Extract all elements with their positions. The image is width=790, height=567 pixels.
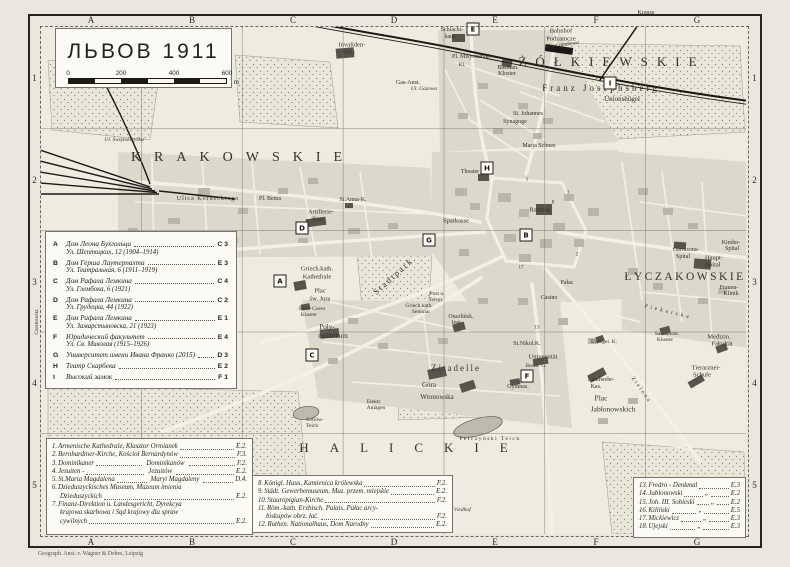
bottom-legend-number: 7.	[52, 501, 57, 509]
bottom-legend-leader-dots	[364, 486, 434, 487]
publisher-imprint: Geograph. Anst. v. Wagner & Debes, Leipz…	[38, 551, 143, 557]
bottom-legend-number: 18.	[639, 523, 648, 531]
map-label: Spital	[705, 262, 720, 269]
bottom-legend-gridref: E.3	[731, 523, 740, 531]
legend-item-address: Ул. Св. Миколая (1915–1926)	[66, 341, 228, 348]
map-label: Unionshügel	[604, 95, 640, 103]
map-marker-e: E	[467, 23, 480, 36]
bottom-legend-row: 17.Mickiewicz„E.3	[639, 515, 740, 523]
map-label: Haupt-	[705, 255, 723, 262]
legend-item-address: Ул. Замарстыновска, 21 (1923)	[66, 323, 228, 330]
map-label: haus	[445, 34, 456, 40]
map-label: Bahnhof	[550, 28, 572, 35]
map-label: Kathedrale	[303, 274, 332, 281]
map-label: Landwehr-	[588, 377, 614, 383]
bottom-legend-row: 7.Finanz-Direktion u. Landesgericht, Dyr…	[52, 501, 247, 509]
bottom-legend-gridref: E.2	[731, 499, 740, 507]
map-label: Spital	[676, 254, 690, 260]
bottom-legend-number: 8.	[258, 480, 263, 488]
map-label: Pałac	[561, 280, 574, 286]
map-label: Pełczyński Teich	[459, 436, 520, 442]
bottom-legend-number: 1.	[52, 443, 57, 451]
legend-item: CДом Рафала ЛемкинаC 4Ул. Глембока, 6 (1…	[53, 277, 228, 293]
map-label: Griech.kath.	[301, 266, 333, 273]
grid-row-label: 4	[32, 378, 37, 388]
bottom-legend-row: krajowa skarbowa i Sąd krajowy dla spraw	[52, 509, 247, 517]
legend-item-body: Юридический факультетE 4Ул. Св. Миколая …	[66, 333, 228, 349]
map-label: św. Jura	[310, 296, 331, 303]
legend-item: BДом Герша ЛаутерпахтаE 3Ул. Театральная…	[53, 259, 228, 275]
bottom-legend-row: 1.Armenische Kathedrale, Klasztor Ormian…	[52, 443, 247, 451]
bottom-legend-leader-dots	[89, 523, 234, 524]
bottom-legend-text: krajowa skarbowa i Sąd krajowy dla spraw	[60, 509, 178, 517]
bottom-legend-gridref: D.4.	[235, 476, 247, 484]
bottom-legend-leader-dots	[321, 519, 435, 520]
bottom-legend-row: 16.Kiliński„E.5	[639, 507, 740, 515]
bottom-legend-leader-dots	[117, 482, 147, 483]
bottom-legend-polish-name: Dominikanów	[146, 460, 184, 468]
bottom-legend-number: 2.	[52, 451, 57, 459]
bottom-legend-number: 3.	[52, 460, 57, 468]
map-label: Stadtpark	[371, 255, 415, 296]
bottom-legend-text: biskupów obrz. łać.	[266, 513, 319, 521]
bottom-legend-text: cywilnych	[60, 518, 87, 526]
bottom-legend-gridref: E.2	[731, 490, 740, 498]
scale-unit: m	[234, 79, 239, 86]
bottom-legend-leader-dots	[176, 474, 234, 475]
map-label: Rathaus	[530, 207, 551, 214]
map-label: Telegr.	[428, 297, 443, 303]
bottom-legend-middle: 8.Königl. Haus, Kamienica królewskaF.2.9…	[252, 475, 453, 533]
legend-leader-dots	[135, 301, 215, 302]
bottom-legend-row: 6.Dzieduszyckisches Museum, Muzeum imien…	[52, 484, 247, 492]
map-label: HALICKIE	[299, 440, 528, 456]
bottom-legend-gridref: F.2.	[237, 460, 247, 468]
bottom-legend-gridref: E.3	[731, 482, 740, 490]
map-label: 13	[535, 326, 540, 331]
bottom-legend-leader-dots	[180, 457, 235, 458]
legend-leader-dots	[198, 357, 214, 358]
bottom-legend-leader-dots	[104, 499, 234, 500]
map-marker-f: F	[521, 370, 534, 383]
title-box: ЛЬВОВ 1911 0200400600 m	[55, 28, 232, 88]
bottom-legend-text: Finanz-Direktion u. Landesgericht, Dyrek…	[58, 501, 182, 509]
scale-segment	[174, 79, 200, 83]
legend-item-gridref: E 1	[218, 315, 228, 322]
bottom-legend-row: 2.Bernhardiner-Kirche, Kościoł Bernardyn…	[52, 451, 247, 459]
grid-col-label: F	[593, 15, 598, 25]
legend-item: AДом Леона БухгольцаC 3Ул. Шептицких, 12…	[53, 240, 228, 256]
legend-item: IВысокий замокF 1	[53, 373, 228, 381]
map-label: Góra	[422, 381, 436, 389]
bottom-legend-gridref: E.5	[731, 507, 740, 515]
map-label: Krause	[638, 10, 655, 16]
map-label: Marja Schnee	[522, 143, 555, 149]
legend-item-key: D	[53, 296, 66, 312]
bottom-legend-text: Röm.-kath. Erzbisch. Palais, Pałac arcy-	[267, 505, 378, 513]
map-label: Anlagen	[367, 405, 386, 411]
legend-box: AДом Леона БухгольцаC 3Ул. Шептицких, 12…	[45, 231, 237, 389]
bottom-legend-leader-dots	[96, 465, 142, 466]
map-label: Theater	[461, 169, 479, 175]
bottom-legend-gridref: E.2.	[236, 518, 247, 526]
bottom-legend-leader-dots	[672, 513, 697, 514]
scale-bar: 0200400600 m	[68, 70, 227, 84]
bottom-legend-text: Dzieduszyckich	[60, 493, 102, 501]
bottom-legend-text: Ujejski	[649, 523, 668, 531]
legend-item-body: Дом Герша ЛаутерпахтаE 3Ул. Театральная,…	[66, 259, 228, 275]
bottom-legend-ditto-mark: „	[711, 499, 715, 507]
bottom-legend-row: 10.Stauropigian-KircheF.2.	[258, 497, 447, 505]
grid-row-label: 4	[752, 378, 757, 388]
bottom-legend-row: DzieduszyckichE.2.	[52, 493, 247, 501]
bottom-legend-gridref: E.2.	[436, 521, 447, 529]
bottom-legend-row: 12.Ruthen. Nationalhaus, Dom NarodnyE.2.	[258, 521, 447, 529]
map-label: Casino	[541, 295, 558, 301]
legend-item-body: Дом Рафала ЛемкинаC 4Ул. Глембока, 6 (19…	[66, 277, 228, 293]
map-label: Kas.	[591, 384, 602, 390]
bottom-legend-row: 4.Jesuiten -JezuitówE.2.	[52, 468, 247, 476]
bottom-legend-row: 9.Städt. Gewerbemuseum, Muz. przem. miej…	[258, 488, 447, 496]
bottom-legend-row: biskupów obrz. łać.F.2.	[258, 513, 447, 521]
grid-col-label: E	[492, 537, 498, 547]
legend-item-address: Ул. Глембока, 6 (1921)	[66, 286, 228, 293]
bottom-legend-leader-dots	[704, 513, 729, 514]
map-label: Universität	[529, 354, 558, 361]
legend-item-line: Дом Рафала ЛемкинаC 2	[66, 296, 228, 304]
legend-item-line: Театр СкарбекаE 2	[66, 362, 228, 370]
legend-item-gridref: E 3	[218, 260, 228, 267]
bottom-legend-row: 15.Joh. III. Sobieski„E.2	[639, 499, 740, 507]
map-label: Pl. Bema	[259, 196, 281, 202]
grid-row-label: 2	[32, 175, 37, 185]
map-marker-d: D	[296, 222, 309, 235]
scale-bar-segments	[68, 78, 227, 84]
legend-item-key: H	[53, 362, 66, 370]
legend-item-key: B	[53, 259, 66, 275]
bottom-legend-text: Jabłonowski	[649, 490, 683, 498]
legend-item-body: Дом Рафала ЛемкинаC 2Ул. Грудецка, 44 (1…	[66, 296, 228, 312]
scale-segment	[69, 79, 95, 83]
legend-item-key: A	[53, 240, 66, 256]
bottom-legend-leader-dots	[203, 482, 233, 483]
map-label: Czernowitz	[34, 309, 40, 334]
bottom-legend-leader-dots	[697, 504, 709, 505]
map-label: Artillerie-	[308, 209, 334, 216]
bottom-legend-leader-dots	[717, 504, 729, 505]
legend-item: FЮридический факультетE 4Ул. Св. Миколая…	[53, 333, 228, 349]
bottom-legend-leader-dots	[670, 529, 696, 530]
bottom-legend-leader-dots	[189, 465, 235, 466]
bottom-legend-text: Stauropigian-Kirche	[268, 497, 324, 505]
scale-segment	[148, 79, 174, 83]
legend-item-name: Дом Рафала Лемкина	[66, 314, 132, 322]
bottom-legend-polish-name: Jezuitów	[148, 468, 172, 476]
legend-leader-dots	[135, 283, 215, 284]
map-label: Plac	[314, 288, 325, 295]
legend-item-name: Университет имени Ивана Франко (2015)	[66, 351, 195, 359]
legend-item-gridref: D 3	[217, 352, 228, 359]
legend-item-name: Юридический факультет	[66, 333, 145, 341]
map-label: Kl.	[459, 62, 466, 68]
map-marker-h: H	[481, 162, 494, 175]
map-label: Poly-	[319, 323, 334, 331]
legend-item-key: F	[53, 333, 66, 349]
legend-item: GУниверситет имени Ивана Франко (2015)D …	[53, 351, 228, 359]
bottom-legend-text: Joh. III. Sobieski	[649, 499, 695, 507]
legend-item: DДом Рафала ЛемкинаC 2Ул. Грудецка, 44 (…	[53, 296, 228, 312]
legend-item-line: Университет имени Ивана Франко (2015)D 3	[66, 351, 228, 359]
map-label: Gymnas.	[507, 384, 529, 390]
legend-item-key: C	[53, 277, 66, 293]
map-marker-a: A	[274, 275, 287, 288]
legend-item: EДом Рафала ЛемкинаE 1Ул. Замарстыновска…	[53, 314, 228, 330]
map-label: Friedhof	[451, 507, 470, 513]
bottom-legend-text: Dominikaner	[58, 460, 94, 468]
map-label: St.Nikol.K.	[513, 341, 541, 347]
bottom-legend-gridref: E.2.	[236, 493, 247, 501]
legend-item-gridref: C 3	[217, 241, 228, 248]
bottom-legend-gridref: E.2.	[236, 443, 247, 451]
grid-col-label: D	[391, 537, 398, 547]
bottom-legend-leader-dots	[86, 474, 144, 475]
bottom-legend-text: Dzieduszyckisches Museum, Muzeum imienia	[58, 484, 181, 492]
map-marker-b: B	[520, 229, 533, 242]
map-label: 8	[552, 201, 555, 206]
scale-tick-labels: 0200400600	[68, 70, 227, 78]
legend-item: HТеатр СкарбекаE 2	[53, 362, 228, 370]
bottom-legend-ditto-mark: „	[703, 515, 707, 523]
map-label: Pl. Misyonarski	[452, 54, 490, 60]
bottom-legend-polish-name: Maryi Magdaleny	[151, 476, 200, 484]
map-label: Schule	[693, 372, 711, 379]
bottom-legend-leader-dots	[325, 502, 435, 503]
map-label: Piekarska	[644, 303, 692, 321]
map-label: Invaliden-	[339, 42, 366, 49]
grid-row-label: 3	[752, 277, 757, 287]
map-label: technikum	[318, 332, 348, 340]
map-label: Evangel. K.	[591, 339, 617, 345]
legend-item-name: Высокий замок	[66, 373, 112, 381]
bottom-legend-number: 16.	[639, 507, 648, 515]
bottom-legend-gridref: E.3	[731, 515, 740, 523]
bottom-legend-leader-dots	[699, 488, 728, 489]
map-label: Kloster	[301, 312, 317, 318]
bottom-legend-leader-dots	[391, 494, 434, 495]
bottom-legend-number: 12.	[258, 521, 267, 529]
legend-item-gridref: E 2	[218, 363, 228, 370]
bottom-legend-leader-dots	[709, 521, 729, 522]
grid-col-label: A	[88, 15, 95, 25]
bottom-legend-left: 1.Armenische Kathedrale, Klasztor Ormian…	[46, 438, 253, 535]
map-label: haus	[343, 49, 355, 56]
map-label: Garnisons-	[673, 247, 699, 253]
bottom-legend-text: Kiliński	[649, 507, 670, 515]
legend-item-body: Театр СкарбекаE 2	[66, 362, 228, 370]
bottom-legend-leader-dots	[180, 449, 234, 450]
map-label: Botan. G.	[525, 363, 546, 369]
scale-label: 200	[116, 70, 127, 77]
map-label: Kloster	[498, 71, 516, 77]
legend-item-gridref: F 1	[218, 374, 228, 381]
map-label: Spital	[725, 246, 739, 252]
legend-item-address: Ул. Грудецка, 44 (1922)	[66, 304, 228, 311]
bottom-legend-row: 8.Königl. Haus, Kamienica królewskaF.2.	[258, 480, 447, 488]
map-label: 3	[567, 191, 570, 196]
legend-item-address: Ул. Шептицких, 12 (1904–1914)	[66, 249, 228, 256]
legend-leader-dots	[119, 368, 215, 369]
scale-label: 0	[66, 70, 70, 77]
map-label: Fakultät	[711, 341, 732, 348]
grid-col-label: C	[290, 537, 296, 547]
bottom-legend-number: 11.	[258, 505, 266, 513]
map-label: Sparkasse	[443, 218, 469, 225]
grid-col-label: F	[593, 537, 598, 547]
legend-item-name: Дом Герша Лаутерпахта	[66, 259, 145, 267]
map-label: Kas.	[312, 216, 324, 223]
legend-leader-dots	[148, 338, 215, 339]
map-label: St.Anna-K.	[339, 197, 366, 203]
bottom-legend-number: 17.	[639, 515, 648, 523]
bottom-legend-gridref: F.2.	[437, 480, 447, 488]
legend-item-name: Дом Рафала Лемкина	[66, 277, 132, 285]
map-label: 1	[526, 178, 529, 183]
map-label: ŻÓŁKIEWSKIE	[518, 54, 705, 70]
legend-leader-dots	[134, 246, 214, 247]
bottom-legend-gridref: F.2.	[437, 497, 447, 505]
legend-item-gridref: C 2	[217, 297, 228, 304]
grid-col-label: B	[189, 537, 195, 547]
legend-item-address: Ул. Театральная, 6 (1911–1919)	[66, 267, 228, 274]
bottom-legend-text: Jesuiten -	[58, 468, 84, 476]
bottom-legend-text: Städt. Gewerbemuseum, Muz. przem. miejsk…	[264, 488, 389, 496]
scale-segment	[200, 79, 226, 83]
grid-col-label: A	[88, 537, 95, 547]
map-label: Schlacht-	[441, 27, 464, 33]
bottom-legend-number: 10.	[258, 497, 267, 505]
grid-col-label: E	[492, 15, 498, 25]
legend-item-line: Дом Леона БухгольцаC 3	[66, 240, 228, 248]
bottom-legend-leader-dots	[371, 527, 434, 528]
map-label: Tierarznei-	[692, 365, 721, 372]
legend-item-line: Дом Рафала ЛемкинаE 1	[66, 314, 228, 322]
map-label: Jabłonowskich	[591, 405, 636, 414]
map-label: Seminar	[412, 309, 430, 315]
map-label: Ul. Świętokrzyska	[104, 137, 143, 143]
legend-item-body: Дом Рафала ЛемкинаE 1Ул. Замарстыновска,…	[66, 314, 228, 330]
legend-item-line: Дом Герша ЛаутерпахтаE 3	[66, 259, 228, 267]
map-label: Ulica Kordeckiego	[177, 196, 239, 202]
grid-col-label: D	[391, 15, 398, 25]
map-label: 17	[519, 266, 524, 271]
legend-leader-dots	[148, 264, 215, 265]
bottom-legend-ditto-mark: „	[697, 523, 701, 531]
map-label: Plac	[595, 394, 608, 403]
bottom-legend-number: 15.	[639, 499, 648, 507]
bottom-legend-gridref: E.2.	[436, 488, 447, 496]
map-label: Medizin.	[707, 334, 730, 341]
grid-row-label: 5	[752, 480, 757, 490]
map-label: 2	[576, 253, 579, 258]
legend-item-name: Дом Леона Бухгольца	[66, 240, 131, 248]
bottom-legend-gridref: F.3.	[237, 451, 247, 459]
bottom-legend-row: 14.Jabłonowski„E.2	[639, 490, 740, 498]
bottom-legend-ditto-mark: „	[698, 507, 702, 515]
grid-col-label: B	[189, 15, 195, 25]
grid-row-label: 5	[32, 480, 37, 490]
map-label: St. Johannes	[513, 111, 543, 117]
bottom-legend-number: 6.	[52, 484, 57, 492]
page-title: ЛЬВОВ 1911	[56, 40, 231, 64]
bottom-legend-leader-dots	[711, 496, 729, 497]
map-label: Wronowska	[420, 393, 454, 401]
legend-item-key: E	[53, 314, 66, 330]
bottom-legend-row: 18.Ujejski„E.3	[639, 523, 740, 531]
map-label: Zielona	[630, 376, 653, 405]
grid-col-label: C	[290, 15, 296, 25]
map-page: KRAKOWSKIEŻÓŁKIEWSKIEŁYCZAKOWSKIEHALICKI…	[0, 0, 790, 567]
legend-item-key: G	[53, 351, 66, 359]
bottom-legend-row: cywilnychE.2.	[52, 518, 247, 526]
map-label: Inst.	[452, 320, 463, 326]
bottom-legend-row: 13.Fredro - DenkmalE.3	[639, 482, 740, 490]
bottom-legend-text: St.Maria Magdalena	[58, 476, 115, 484]
bottom-legend-text: Armenische Kathedrale, Klasztor Ormianek	[58, 443, 178, 451]
legend-item-line: Высокий замокF 1	[66, 373, 228, 381]
legend-item-body: Университет имени Ивана Франко (2015)D 3	[66, 351, 228, 359]
scale-label: 600	[222, 70, 233, 77]
bottom-legend-row: 5.St.Maria MagdalenaMaryi MagdalenyD.4.	[52, 476, 247, 484]
bottom-legend-text: Königl. Haus, Kamienica królewska	[264, 480, 362, 488]
bottom-legend-right: 13.Fredro - DenkmalE.314.Jabłonowski„E.2…	[633, 477, 746, 538]
bottom-legend-text: Mickiewicz	[649, 515, 680, 523]
legend-item-line: Юридический факультетE 4	[66, 333, 228, 341]
scale-segment	[121, 79, 147, 83]
map-label: KRAKOWSKIE	[131, 150, 355, 166]
map-label: Zitadelle	[431, 363, 481, 373]
bottom-legend-number: 13.	[639, 482, 648, 490]
bottom-legend-number: 4.	[52, 468, 57, 476]
legend-leader-dots	[115, 379, 215, 380]
bottom-legend-text: Fredro - Denkmal	[649, 482, 698, 490]
map-label: Synagoge	[503, 119, 527, 125]
legend-item-gridref: C 4	[217, 278, 228, 285]
map-label: Ul. Gazowa	[411, 86, 437, 92]
bottom-legend-text: Bernhardiner-Kirche, Kościoł Bernardynów	[58, 451, 178, 459]
grid-row-label: 1	[32, 73, 37, 83]
map-label: Franz Josephsberg	[542, 83, 660, 93]
legend-item-gridref: E 4	[218, 334, 228, 341]
legend-item-name: Дом Рафала Лемкина	[66, 296, 132, 304]
map-label: Klinik	[723, 291, 738, 297]
map-marker-c: C	[306, 349, 319, 362]
map-label: Teich	[306, 423, 318, 429]
legend-item-body: Дом Леона БухгольцаC 3Ул. Шептицких, 12 …	[66, 240, 228, 256]
legend-item-name: Театр Скарбека	[66, 362, 116, 370]
grid-row-label: 2	[752, 175, 757, 185]
map-marker-g: G	[423, 234, 436, 247]
bottom-legend-text: Ruthen. Nationalhaus, Dom Narodny	[268, 521, 369, 529]
grid-row-label: 1	[752, 73, 757, 83]
bottom-legend-number: 14.	[639, 490, 648, 498]
grid-col-label: G	[694, 537, 701, 547]
legend-item-key: I	[53, 373, 66, 381]
bottom-legend-gridref: E.2.	[236, 468, 247, 476]
grid-col-label: G	[694, 15, 701, 25]
bottom-legend-number: 9.	[258, 488, 263, 496]
bottom-legend-gridref: F.2.	[437, 513, 447, 521]
bottom-legend-row: 3.DominikanerDominikanówF.2.	[52, 460, 247, 468]
